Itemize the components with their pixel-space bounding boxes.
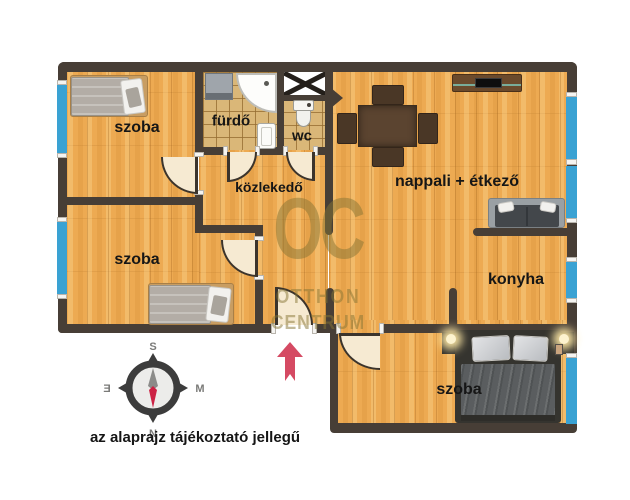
floorplan-canvas: szoba szoba fürdő wc közlekedő nappali +… <box>0 0 630 500</box>
room-label-bedroom1: szoba <box>114 119 159 137</box>
dining-chair <box>372 147 404 167</box>
disclaimer-text: az alaprajz tájékoztató jellegű <box>40 429 350 446</box>
tv-icon <box>475 78 502 88</box>
room-label-bedroom2: szoba <box>114 251 159 269</box>
wall-bathroom-right <box>277 72 284 155</box>
wall-kitchen-stub <box>449 288 457 326</box>
window-cap <box>566 298 577 303</box>
wall-entry-stub <box>326 288 334 326</box>
wall-bottom-bedroom <box>330 423 577 433</box>
compass-letter-left: Ǝ <box>103 383 110 395</box>
wall-bedroom-bottom-left <box>330 324 338 429</box>
window-cap <box>566 159 577 165</box>
dining-chair <box>337 113 357 144</box>
tv-cabinet <box>452 74 522 92</box>
room-label-bedroom3: szoba <box>436 381 481 399</box>
single-bed-2 <box>148 283 234 325</box>
wall-bedroom1-bottom <box>58 197 203 205</box>
room-label-living: nappali + étkező <box>395 173 519 191</box>
window-bedroom2-left <box>57 222 67 294</box>
wall-jog <box>195 225 263 233</box>
window-kitchen-right <box>566 262 577 298</box>
window-cap <box>57 80 67 85</box>
wall-wet-bottom-a <box>203 147 225 155</box>
compass-letter-top: S <box>149 341 156 353</box>
dining-chair <box>418 113 438 144</box>
bedside-photo <box>555 344 563 355</box>
entrance-arrow-icon <box>276 342 304 382</box>
bedside-lamp <box>559 334 569 344</box>
window-cap <box>57 153 67 158</box>
window-living-right-2 <box>566 166 577 218</box>
wall-bottom-a <box>58 324 274 333</box>
window-cap <box>57 294 67 299</box>
window-cap <box>566 257 577 262</box>
wall-living-kitchen <box>473 228 567 236</box>
ventilation-shaft <box>283 72 328 96</box>
window-cap <box>566 353 577 358</box>
dining-table <box>358 105 417 147</box>
sofa <box>488 198 565 228</box>
wall-bedroom1-right-upper <box>195 62 203 155</box>
window-cap <box>566 218 577 223</box>
window-bedroom1-left <box>57 85 67 153</box>
window-cap <box>57 217 67 222</box>
washing-machine <box>205 73 233 100</box>
shower-drain-icon <box>264 81 269 86</box>
bedside-lamp <box>446 334 456 344</box>
room-label-kitchen: konyha <box>488 271 544 289</box>
single-bed-1 <box>70 75 148 117</box>
compass-letter-right: M <box>195 383 204 395</box>
shaft-x-icon <box>283 72 328 96</box>
window-living-right-1 <box>566 97 577 159</box>
double-bed <box>455 330 561 423</box>
wall-bedroom2-right-lower <box>255 278 263 326</box>
compass-rose: S N Ǝ M <box>95 340 210 440</box>
window-bedroom3-right <box>566 358 577 424</box>
dining-chair <box>372 85 404 105</box>
dining-set <box>337 85 438 167</box>
room-label-bathroom: fürdő <box>212 113 250 130</box>
toilet <box>293 100 314 128</box>
window-cap <box>566 92 577 97</box>
room-label-wc: wc <box>292 128 312 145</box>
wall-top <box>58 62 577 72</box>
room-label-hallway: közlekedő <box>235 179 303 195</box>
